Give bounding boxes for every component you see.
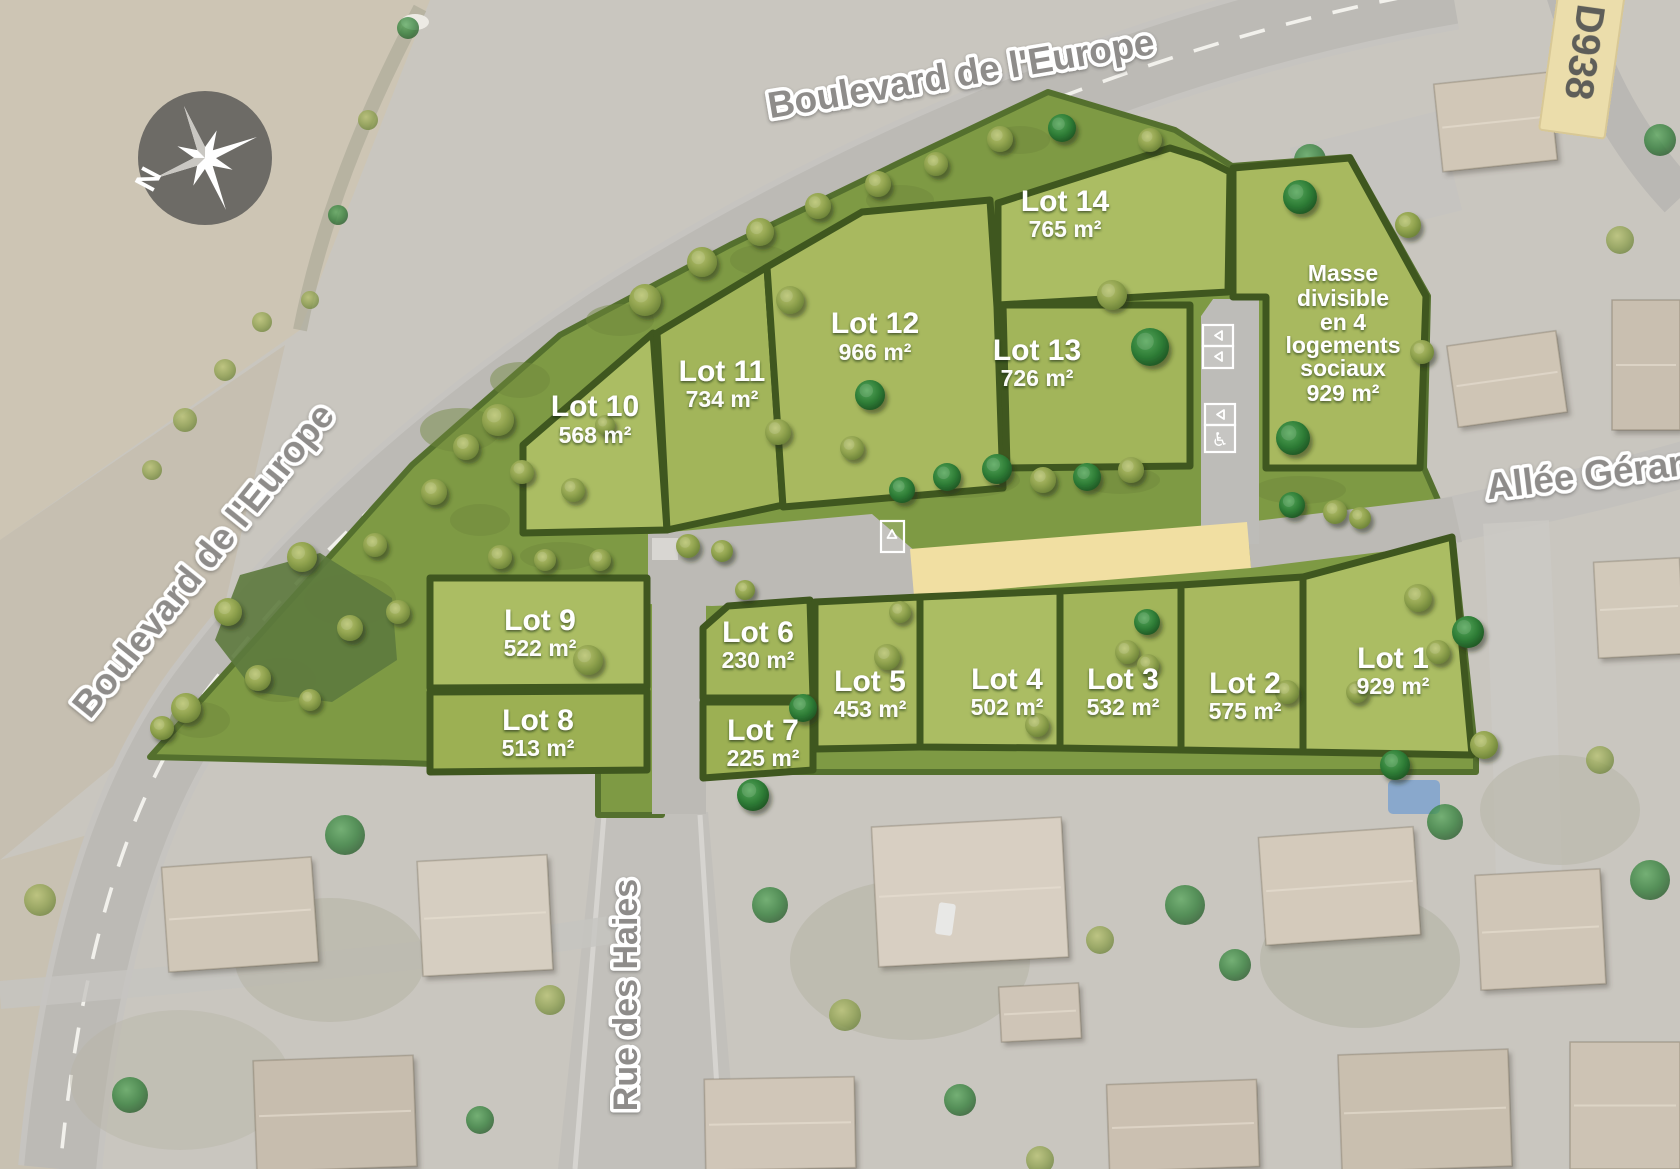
lot-6-area: 230 m²	[722, 647, 795, 673]
house	[1434, 72, 1558, 172]
olive-tree-icon	[1138, 128, 1162, 152]
olive-tree-icon	[214, 598, 242, 626]
masse-line-1: Masse	[1308, 260, 1378, 286]
lot-2-area: 575 m²	[1209, 698, 1282, 724]
olive-tree-icon	[561, 478, 585, 502]
tree	[829, 999, 861, 1031]
tree	[535, 985, 565, 1015]
tree	[142, 460, 162, 480]
olive-tree-icon	[865, 171, 891, 197]
olive-tree-icon	[924, 152, 948, 176]
parking-stall	[1203, 325, 1233, 346]
olive-tree-icon	[805, 193, 831, 219]
olive-tree-icon	[676, 534, 700, 558]
lot-7-area: 225 m²	[727, 745, 800, 771]
olive-tree-icon	[482, 404, 514, 436]
lot-8-area: 513 m²	[502, 735, 575, 761]
site-plan-svg: ♿ Lot 1 929 m² Lot 2 575 m² Lot 3	[0, 0, 1680, 1169]
olive-tree-icon	[889, 601, 911, 623]
olive-tree-icon	[488, 545, 512, 569]
dark-tree-icon	[1048, 114, 1076, 142]
olive-tree-icon	[337, 615, 363, 641]
olive-tree-icon	[776, 286, 804, 314]
house	[871, 817, 1068, 967]
house	[253, 1055, 417, 1169]
lot-10-area: 568 m²	[559, 422, 632, 448]
olive-tree-icon	[589, 549, 611, 571]
olive-tree-icon	[1118, 457, 1144, 483]
wheelchair-icon: ♿	[1211, 429, 1228, 451]
house	[1570, 1042, 1680, 1169]
olive-tree-icon	[1426, 640, 1450, 664]
lot-14-label: Lot 14	[1021, 185, 1110, 218]
dark-tree-icon	[737, 779, 769, 811]
tree	[112, 1077, 148, 1113]
olive-tree-icon	[386, 600, 410, 624]
dark-tree-icon	[982, 454, 1012, 484]
street-label-rue-des-haies: Rue des Haies	[607, 879, 645, 1111]
tree	[944, 1084, 976, 1116]
dark-tree-icon	[1131, 328, 1169, 366]
masse-area: 929 m²	[1307, 380, 1380, 406]
tree	[328, 205, 348, 225]
tree	[1427, 804, 1463, 840]
olive-tree-icon	[287, 542, 317, 572]
house	[999, 983, 1082, 1042]
olive-tree-icon	[1349, 507, 1371, 529]
olive-tree-icon	[746, 218, 774, 246]
pool	[1388, 780, 1440, 814]
tree	[301, 291, 319, 309]
tree	[173, 408, 197, 432]
tree	[1219, 949, 1251, 981]
dark-tree-icon	[889, 477, 915, 503]
lot-13-label: Lot 13	[993, 334, 1081, 367]
internal-road-south	[652, 598, 706, 814]
dark-tree-icon	[1452, 616, 1484, 648]
parking-stall	[1205, 404, 1235, 425]
lot-13-area: 726 m²	[1001, 365, 1074, 391]
sidewalk	[652, 538, 678, 560]
house	[417, 855, 553, 977]
lot-7-label: Lot 7	[727, 714, 799, 747]
lot-4-area: 502 m²	[971, 694, 1044, 720]
house	[704, 1077, 856, 1169]
olive-tree-icon	[299, 689, 321, 711]
olive-tree-icon	[1323, 500, 1347, 524]
lot-9-label: Lot 9	[504, 604, 576, 637]
lot-11-label: Lot 11	[679, 355, 766, 388]
masse-line-5: sociaux	[1300, 355, 1386, 381]
house	[1475, 869, 1606, 990]
olive-tree-icon	[687, 247, 717, 277]
lot-6-label: Lot 6	[722, 616, 794, 649]
lot-2-parcel[interactable]	[1181, 577, 1303, 752]
lot-10-label: Lot 10	[551, 390, 639, 423]
olive-tree-icon	[1097, 280, 1127, 310]
olive-tree-icon	[510, 460, 534, 484]
site-plan-map: ♿ Lot 1 929 m² Lot 2 575 m² Lot 3	[0, 0, 1680, 1169]
olive-tree-icon	[453, 434, 479, 460]
dark-tree-icon	[933, 463, 961, 491]
lot-11-area: 734 m²	[686, 386, 759, 412]
olive-tree-icon	[1395, 212, 1421, 238]
house	[1338, 1049, 1512, 1169]
tree	[397, 17, 419, 39]
lot-1-label: Lot 1	[1357, 642, 1429, 675]
olive-tree-icon	[1410, 340, 1434, 364]
olive-tree-icon	[1404, 584, 1432, 612]
tree	[1586, 746, 1614, 774]
parking-stall	[881, 521, 904, 552]
lot-3-area: 532 m²	[1087, 694, 1160, 720]
tree	[252, 312, 272, 332]
olive-tree-icon	[711, 540, 733, 562]
olive-tree-icon	[421, 479, 447, 505]
house	[1447, 331, 1567, 428]
tree	[1644, 124, 1676, 156]
dark-tree-icon	[1380, 750, 1410, 780]
lot-14-area: 765 m²	[1029, 216, 1102, 242]
house	[1258, 827, 1420, 946]
house	[1594, 558, 1680, 658]
olive-tree-icon	[245, 665, 271, 691]
olive-tree-icon	[363, 533, 387, 557]
tree	[466, 1106, 494, 1134]
tree	[1086, 926, 1114, 954]
dark-tree-icon	[1283, 180, 1317, 214]
olive-tree-icon	[573, 645, 603, 675]
lot-4-label: Lot 4	[971, 663, 1043, 696]
house	[1107, 1079, 1260, 1169]
lot-5-label: Lot 5	[834, 665, 906, 698]
olive-tree-icon	[629, 284, 661, 316]
tree	[325, 815, 365, 855]
olive-tree-icon	[1470, 731, 1498, 759]
olive-tree-icon	[735, 580, 755, 600]
tree	[752, 887, 788, 923]
lot-2-label: Lot 2	[1209, 667, 1281, 700]
lot-8-label: Lot 8	[502, 704, 574, 737]
parking-stall	[1203, 346, 1233, 368]
olive-tree-icon	[987, 126, 1013, 152]
dark-tree-icon	[1276, 421, 1310, 455]
olive-tree-icon	[1030, 467, 1056, 493]
olive-tree-icon	[765, 419, 791, 445]
tree	[24, 884, 56, 916]
olive-tree-icon	[150, 716, 174, 740]
lot-9-area: 522 m²	[504, 635, 577, 661]
lot-12-area: 966 m²	[839, 339, 912, 365]
dark-tree-icon	[1073, 463, 1101, 491]
tree	[1630, 860, 1670, 900]
house	[162, 857, 319, 972]
olive-tree-icon	[171, 693, 201, 723]
dark-tree-icon	[1279, 492, 1305, 518]
lot-12-label: Lot 12	[831, 307, 919, 340]
lot-5-area: 453 m²	[834, 696, 907, 722]
house	[1612, 300, 1680, 430]
dark-tree-icon	[855, 380, 885, 410]
tree	[214, 359, 236, 381]
tree	[1606, 226, 1634, 254]
olive-tree-icon	[1115, 640, 1139, 664]
tree	[358, 110, 378, 130]
lot-1-area: 929 m²	[1357, 673, 1430, 699]
lot-3-label: Lot 3	[1087, 663, 1159, 696]
tree	[1165, 885, 1205, 925]
masse-line-2: divisible	[1297, 285, 1389, 311]
olive-tree-icon	[840, 436, 864, 460]
olive-tree-icon	[534, 549, 556, 571]
dark-tree-icon	[1134, 609, 1160, 635]
